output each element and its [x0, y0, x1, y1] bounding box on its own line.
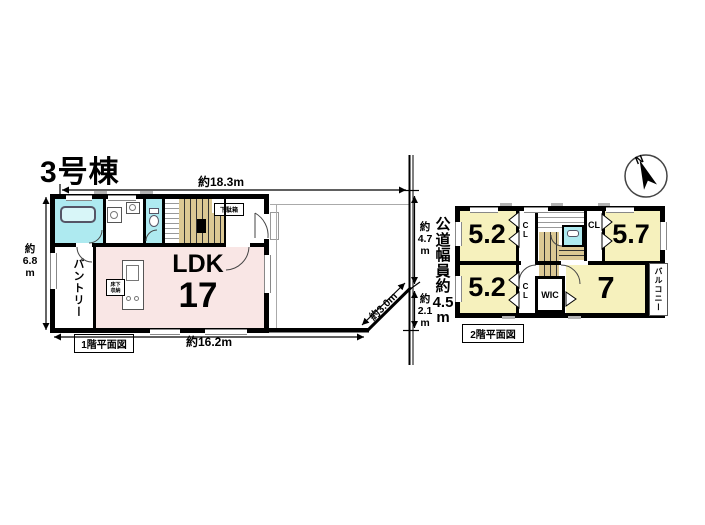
stairs-1f-post [197, 219, 206, 233]
dim-top-label: 約18.3m [198, 173, 244, 190]
wall [516, 265, 519, 313]
window-mark [66, 195, 92, 201]
floorplan-page: 3号棟 下駄箱 パントリー 床下 収納 LDK 17 [0, 0, 705, 525]
compass: N [618, 144, 674, 204]
caption-1f: 1階平面図 [74, 334, 134, 353]
window-mark [150, 329, 180, 335]
room-wic: WIC [535, 276, 565, 313]
window-mark [455, 276, 462, 302]
room-2f-nw-label: 5.2 [458, 221, 516, 248]
cl-label-top-left: CL [521, 221, 530, 239]
cl-label-bottom: CL [521, 282, 530, 300]
shoe-cabinet-label: 下駄箱 [214, 203, 244, 216]
wall [103, 199, 106, 243]
wic-label: WIC [541, 290, 559, 300]
balcony-label: バルコニー [653, 267, 664, 312]
underfloor-storage-text: 床下 収納 [110, 282, 120, 294]
toilet-icon-1f [149, 208, 159, 214]
cl-label-top-right: CL [588, 220, 600, 230]
wall [93, 247, 96, 328]
caption-2f-text: 2階平面図 [470, 326, 516, 341]
room-2f-se-label: 7 [568, 272, 644, 303]
wall [516, 211, 519, 261]
door-gap [561, 261, 588, 265]
wall [162, 199, 165, 243]
entry-door-gap [264, 214, 269, 239]
toilet-bowl-icon-1f [149, 215, 159, 227]
window-mark [524, 207, 548, 213]
dim-bottom-label: 約16.2m [186, 333, 232, 350]
window-mark [264, 255, 271, 293]
shutter-mark [568, 316, 581, 319]
shutter-mark [598, 203, 610, 206]
stove-burner-icon [134, 296, 139, 301]
shutter-mark [551, 203, 563, 206]
pantry-label: パントリー [70, 258, 86, 324]
bathtub-icon [60, 206, 96, 223]
wall [224, 199, 226, 243]
sink-bowl-icon [129, 204, 136, 211]
wall [584, 211, 587, 261]
underfloor-storage-label: 床下 収納 [106, 279, 125, 296]
wall [535, 211, 538, 261]
road-width-label: 公 道 幅 員 約 4.5 m [430, 217, 456, 326]
window-mark [108, 195, 136, 201]
stairs-1f-treads [163, 199, 179, 243]
wall [460, 261, 660, 265]
room-2f-ne-label: 5.7 [601, 221, 661, 248]
window-mark [50, 253, 57, 289]
door-gap [76, 243, 92, 247]
balcony: バルコニー [649, 263, 668, 316]
window-mark [660, 222, 667, 250]
window-mark [606, 207, 634, 213]
door-gap [521, 261, 535, 265]
shutter-mark [500, 203, 512, 206]
entry-porch [270, 212, 279, 240]
caption-1f-text: 1階平面図 [81, 336, 127, 351]
window-mark [470, 207, 498, 213]
window-mark [455, 222, 462, 246]
page-title: 3号棟 [40, 147, 120, 191]
dim-left-label: 約 6.8 m [18, 243, 42, 279]
shutter-mark [140, 191, 153, 194]
wall [143, 199, 146, 243]
shutter-mark [94, 191, 107, 194]
tick [406, 282, 420, 292]
stairs-2f-lower [559, 246, 584, 260]
toilet-icon-2f [567, 230, 579, 237]
washing-machine-drum-icon [110, 211, 118, 219]
shoe-cabinet-text: 下駄箱 [220, 205, 238, 214]
road-dim-diagonal-label: 約3.0m [366, 289, 401, 324]
room-2f-sw-label: 5.2 [458, 274, 516, 301]
ldk-size-label: 17 [158, 278, 238, 313]
lot-boundary [265, 328, 369, 333]
shutter-mark [502, 316, 515, 319]
kitchen-sink-icon [126, 265, 139, 281]
caption-2f: 2階平面図 [462, 324, 524, 343]
ldk-label: LDK [158, 252, 238, 277]
stove-burner-icon [126, 296, 131, 301]
